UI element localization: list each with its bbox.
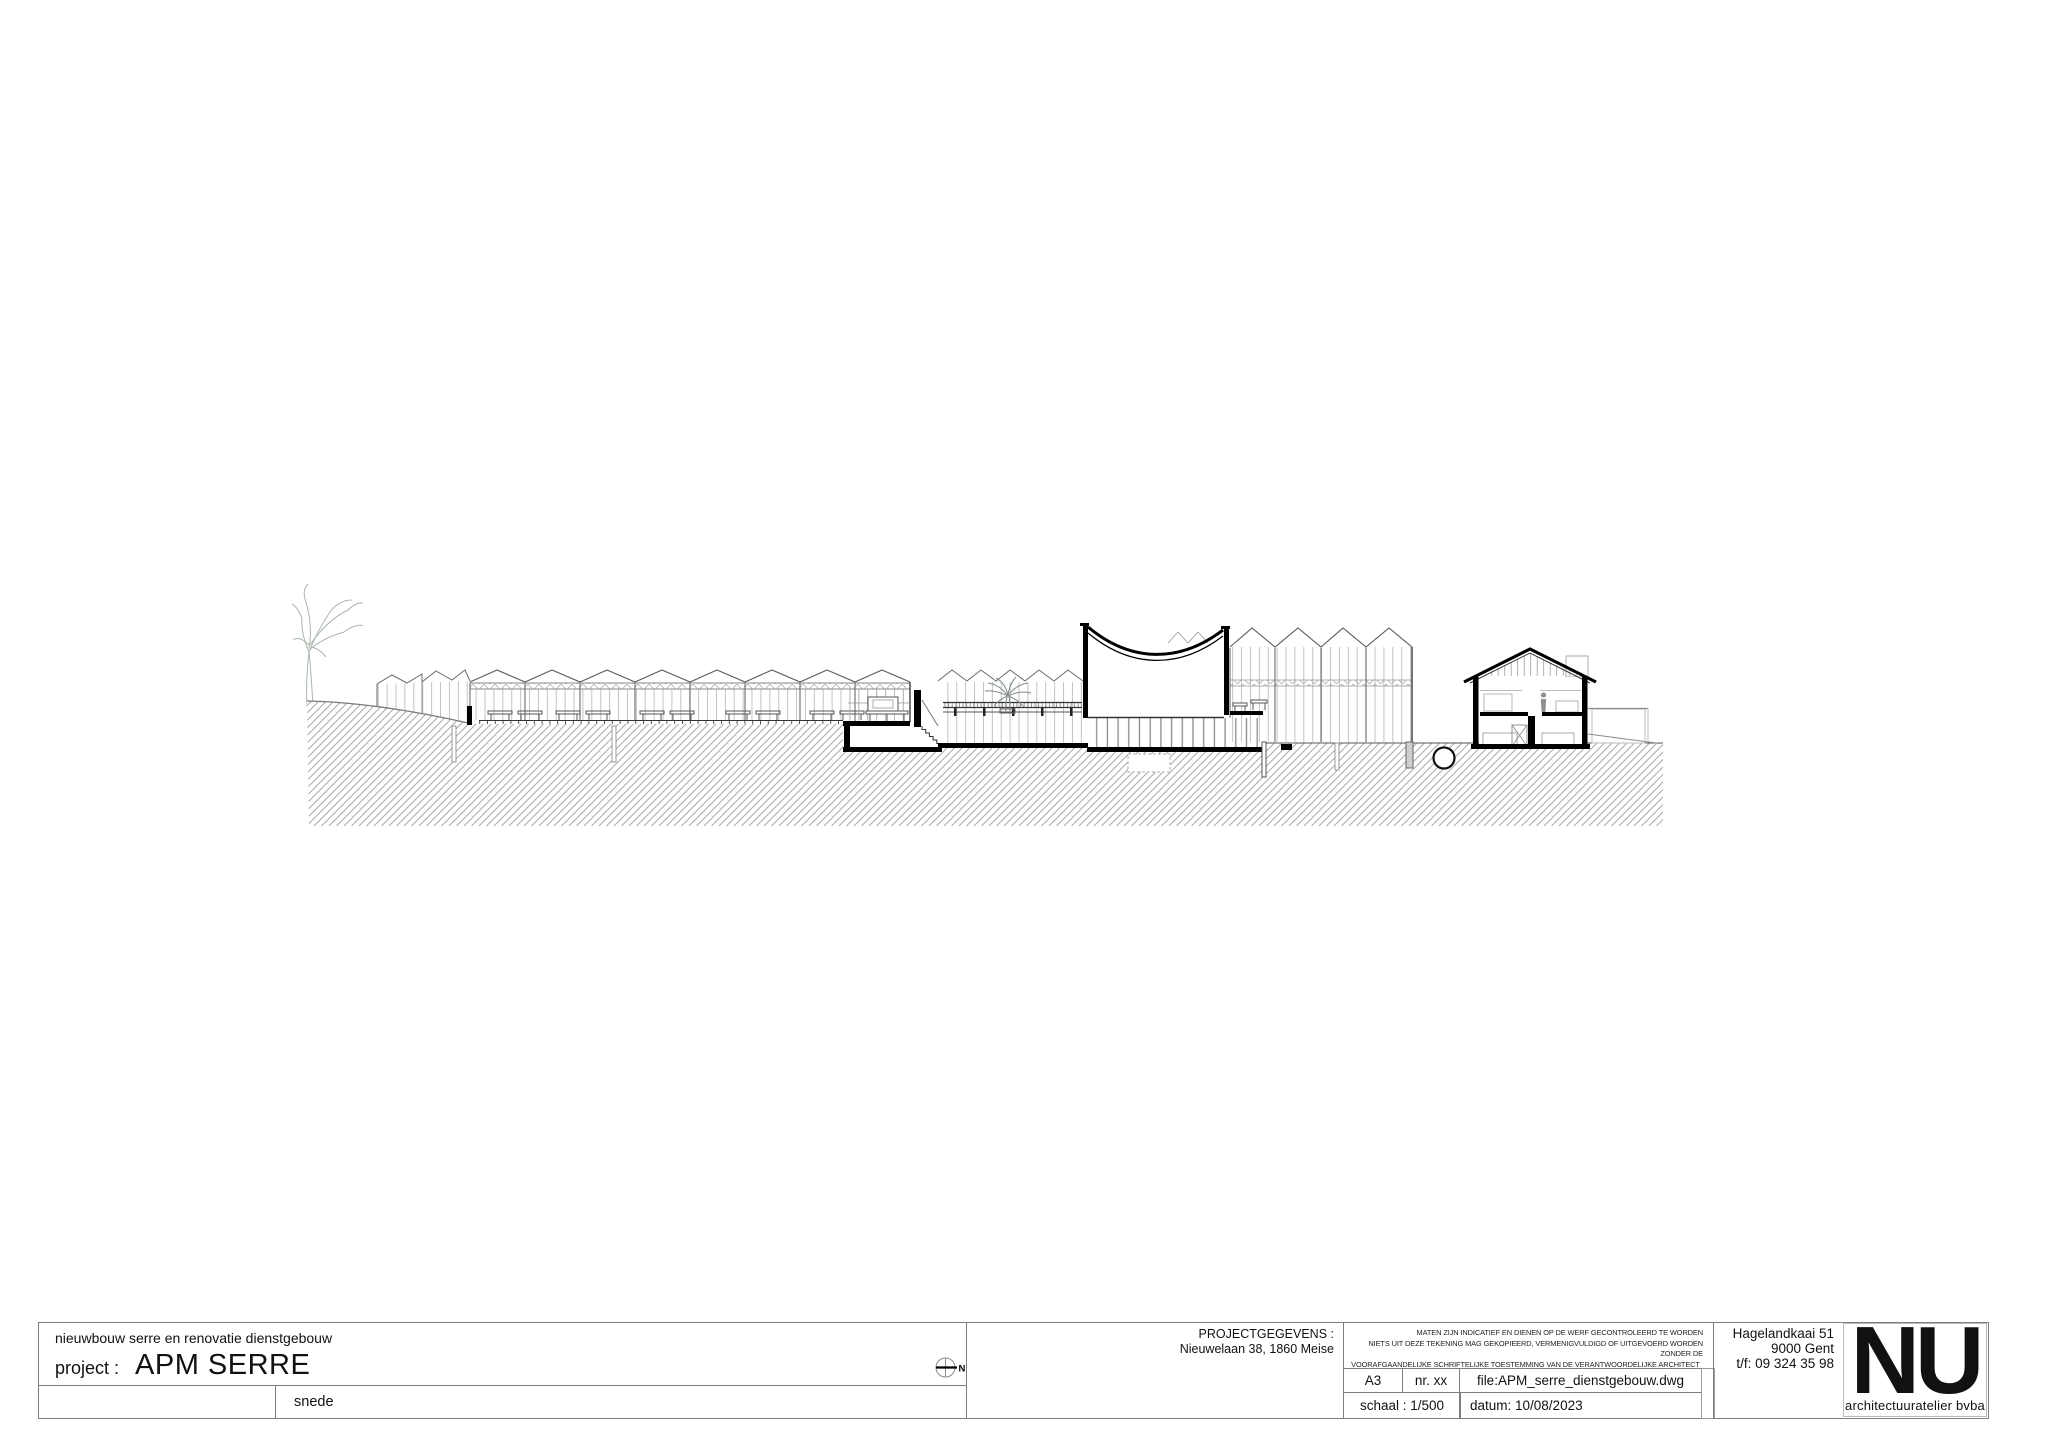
section-drawing: N bbox=[0, 0, 2048, 1448]
empty-cell bbox=[38, 1385, 276, 1419]
architect-phone: t/f: 09 324 35 98 bbox=[1716, 1356, 1834, 1371]
project-data-cell: PROJECTGEGEVENS : Nieuwelaan 38, 1860 Me… bbox=[966, 1322, 1344, 1419]
file-name: file:APM_serre_dienstgebouw.dwg bbox=[1460, 1369, 1701, 1392]
project-name: APM SERRE bbox=[135, 1349, 310, 1381]
sheet-page: N nieuwbouw serre en renovatie dienstgeb… bbox=[0, 0, 2048, 1448]
tall-greenhouse bbox=[1230, 628, 1412, 742]
person-figure bbox=[1541, 692, 1546, 697]
paper-size: A3 bbox=[1344, 1369, 1402, 1392]
date-cell: datum: 10/08/2023 bbox=[1459, 1392, 1702, 1419]
scale-value: schaal : 1/500 bbox=[1344, 1393, 1460, 1419]
architect-address: Hagelandkaai 51 9000 Gent t/f: 09 324 35… bbox=[1716, 1326, 1834, 1371]
scale-cell: schaal : 1/500 bbox=[1343, 1392, 1461, 1419]
architect-address-line2: 9000 Gent bbox=[1716, 1341, 1834, 1356]
project-label: project : bbox=[55, 1358, 119, 1378]
long-greenhouse bbox=[470, 670, 910, 725]
date-value: datum: 10/08/2023 bbox=[1460, 1393, 1701, 1419]
architect-logo-box: NU architectuuratelier bvba bbox=[1843, 1323, 1987, 1417]
disclaimer-cell: MATEN ZIJN INDICATIEF EN DIENEN OP DE WE… bbox=[1343, 1322, 1714, 1369]
architect-logo: NU bbox=[1851, 1325, 1980, 1398]
project-description: nieuwbouw serre en renovatie dienstgebou… bbox=[39, 1323, 966, 1346]
project-data-address: Nieuwelaan 38, 1860 Meise bbox=[967, 1342, 1334, 1357]
terrace-zone bbox=[922, 670, 1083, 747]
drawing-title: snede bbox=[276, 1386, 966, 1418]
disclaimer-line2: NIETS UIT DEZE TEKENING MAG GEKOPIEERD, … bbox=[1348, 1339, 1703, 1360]
sheet-number: nr. xx bbox=[1403, 1369, 1459, 1392]
drawing-title-cell: snede bbox=[275, 1385, 967, 1419]
paper-size-cell: A3 bbox=[1343, 1368, 1403, 1393]
annex-ramp bbox=[1588, 709, 1660, 744]
house-section bbox=[1464, 649, 1660, 749]
sheet-number-cell: nr. xx bbox=[1402, 1368, 1460, 1393]
tree-icon bbox=[292, 584, 363, 706]
file-cell: file:APM_serre_dienstgebouw.dwg bbox=[1459, 1368, 1702, 1393]
architect-address-line1: Hagelandkaai 51 bbox=[1716, 1326, 1834, 1341]
pipe-section-circle bbox=[1434, 748, 1455, 769]
project-data-label: PROJECTGEGEVENS : bbox=[967, 1327, 1334, 1342]
project-title-row: project :APM SERRE bbox=[55, 1349, 310, 1382]
disclaimer-line1: MATEN ZIJN INDICATIEF EN DIENEN OP DE WE… bbox=[1348, 1328, 1703, 1339]
architect-logo-subtitle: architectuuratelier bvba bbox=[1845, 1398, 1985, 1413]
project-cell: nieuwbouw serre en renovatie dienstgebou… bbox=[38, 1322, 967, 1386]
